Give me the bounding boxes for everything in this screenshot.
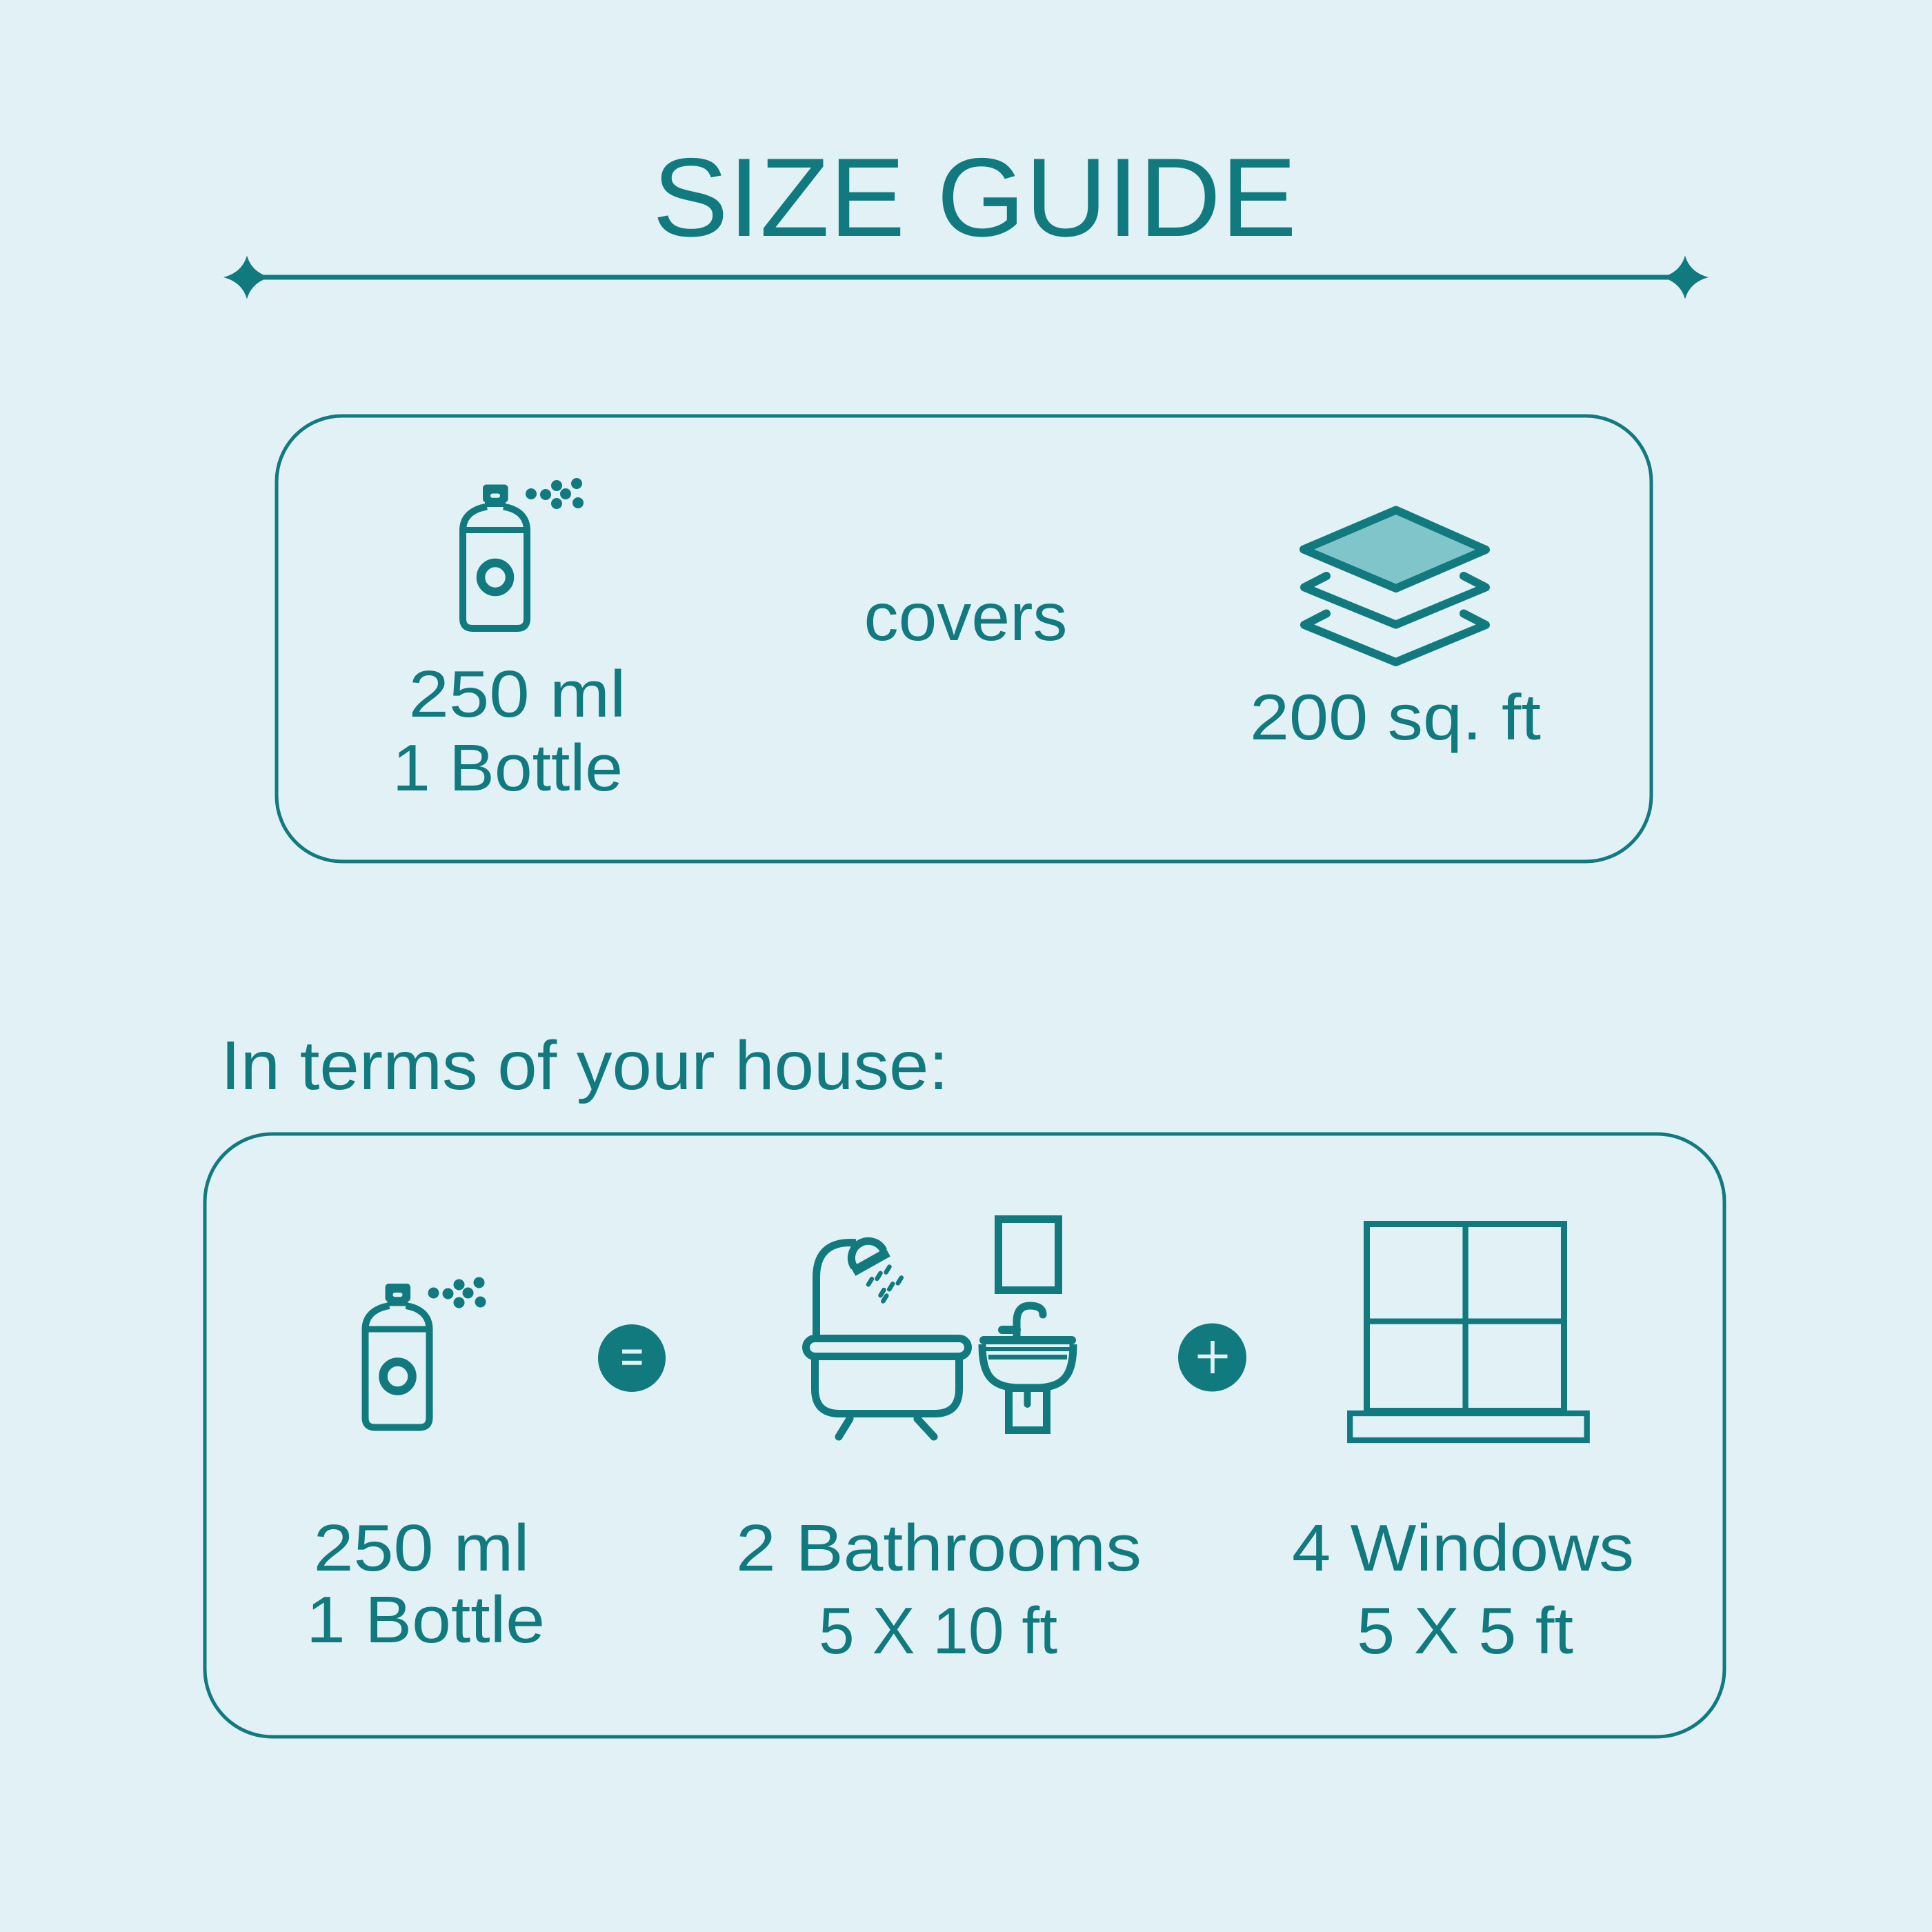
svg-text:5 X 10 ft: 5 X 10 ft [819, 1594, 1057, 1668]
svg-text:4 Windows: 4 Windows [1292, 1511, 1634, 1585]
svg-text:250 ml: 250 ml [314, 1511, 530, 1585]
svg-text:5 X 5 ft: 5 X 5 ft [1357, 1594, 1573, 1668]
svg-text:2 Bathrooms: 2 Bathrooms [736, 1511, 1142, 1585]
svg-text:200 sq. ft: 200 sq. ft [1250, 681, 1541, 753]
svg-text:1 Bottle: 1 Bottle [392, 731, 623, 805]
svg-text:SIZE GUIDE: SIZE GUIDE [653, 135, 1297, 260]
svg-text:250 ml: 250 ml [409, 657, 626, 731]
svg-text:covers: covers [864, 579, 1068, 655]
svg-text:1 Bottle: 1 Bottle [306, 1583, 545, 1657]
svg-text:In terms of your house:: In terms of your house: [221, 1027, 948, 1104]
